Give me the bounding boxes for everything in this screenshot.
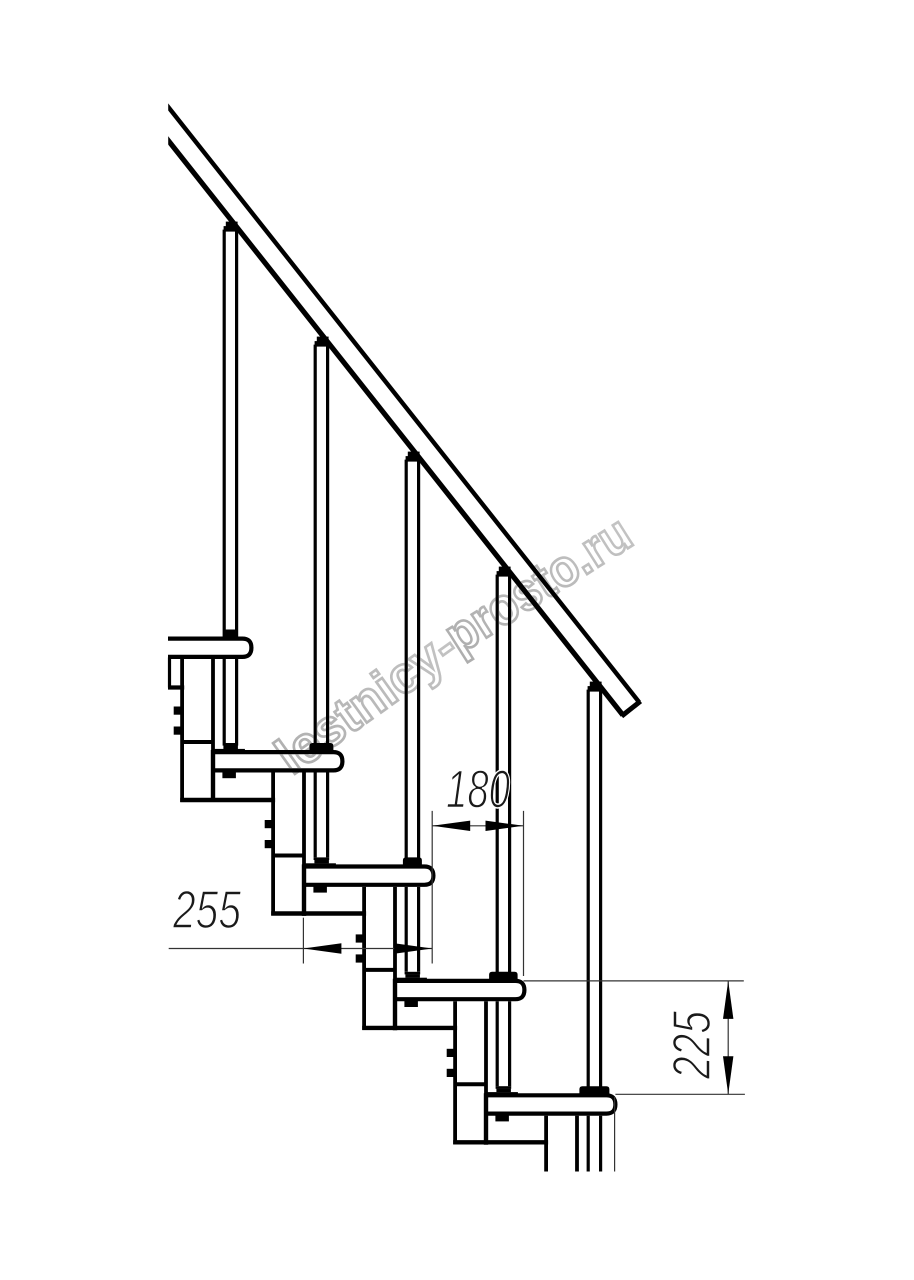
- svg-text:lestnicy-: lestnicy-: [265, 618, 468, 786]
- svg-text:180: 180: [446, 760, 510, 820]
- svg-text:prosto.ru: prosto.ru: [434, 504, 642, 665]
- svg-text:255: 255: [172, 880, 241, 940]
- svg-text:225: 225: [662, 1010, 722, 1079]
